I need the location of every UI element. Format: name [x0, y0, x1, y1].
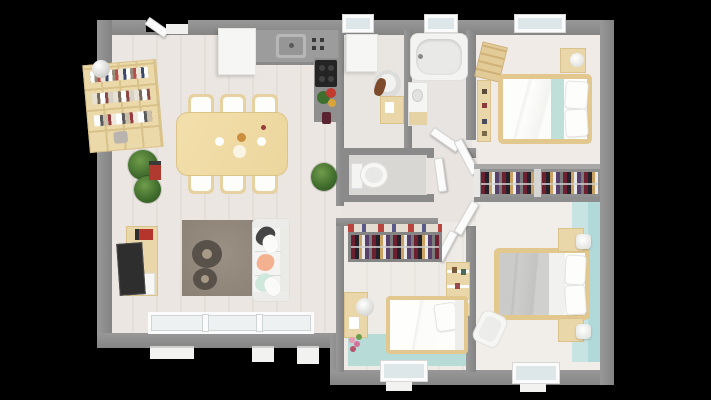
- utility-window-glass: [346, 18, 370, 29]
- bathtub: [410, 33, 468, 81]
- sofa-backrest: [280, 219, 289, 301]
- bedroom3-lamp-top: [576, 234, 591, 249]
- nightstand-lamp: [570, 53, 584, 67]
- cooktop-burners: [319, 65, 325, 71]
- window-sill-tab-3: [297, 346, 319, 364]
- desk-chair: [374, 70, 401, 98]
- bedroom2-bed: [386, 296, 468, 354]
- wardrobe-unit-2-clothes: [542, 172, 598, 194]
- outer-wall-bottom-right: [330, 370, 614, 385]
- bed1-pillow-1: [564, 80, 589, 110]
- chair3-cushion: [477, 314, 503, 343]
- window-sill-tab-2: [252, 346, 274, 362]
- bedroom2-window: [380, 360, 428, 382]
- utility-desk: [380, 96, 404, 124]
- books-row-2: [92, 89, 151, 105]
- window-mullion-2: [257, 315, 262, 331]
- pouf-center: [201, 275, 209, 283]
- basket-decor: [113, 131, 128, 144]
- wardrobe2-top-shelf-items: [348, 224, 442, 232]
- table-setting-plates: [215, 137, 224, 146]
- books-row-3: [94, 111, 153, 127]
- flower-yellow: [328, 99, 336, 107]
- bed1-pillow-2: [564, 108, 588, 137]
- bedroom3-bed: [494, 248, 590, 320]
- pouf-center: [202, 249, 212, 259]
- window-mullion-1: [203, 315, 208, 331]
- potted-plant-hall: [311, 163, 337, 191]
- bedroom3-lamp-bottom: [576, 324, 591, 339]
- bedroom3-window-glass: [516, 366, 556, 380]
- wardrobe-divider: [534, 169, 541, 197]
- sofa-armrest-top: [253, 219, 289, 228]
- bed3-pillow-1: [564, 254, 587, 285]
- dining-table: [176, 112, 288, 176]
- bed1-teal-runner: [551, 79, 564, 139]
- bedroom1-nightstand: [560, 48, 586, 73]
- bathtub-faucet: [418, 54, 423, 59]
- cushion-peach: [255, 252, 276, 273]
- pouf-small: [193, 268, 217, 290]
- shelf-items: [482, 89, 487, 94]
- bed3-duvet-gray: [499, 253, 549, 315]
- counter-bottle: [322, 112, 331, 124]
- shelf-items: [452, 267, 457, 273]
- outer-wall-right: [600, 20, 614, 385]
- wc-room: [342, 148, 434, 202]
- wardrobe-rail: [481, 183, 534, 185]
- wardrobe-rail: [542, 183, 598, 185]
- bedroom1-bed: [498, 74, 592, 144]
- wall-bedroom2-left: [336, 226, 344, 372]
- desk-paper: [385, 102, 394, 113]
- bedroom3-window-sill: [520, 384, 546, 392]
- bedroom2-flowers: [349, 337, 355, 343]
- console-red-box: [135, 229, 153, 240]
- bedroom1-window-glass: [518, 18, 562, 29]
- wc-door-gap: [426, 158, 434, 194]
- washing-machine: [346, 34, 378, 72]
- narrow-shelf: [477, 80, 491, 142]
- window-sill-tab-1: [150, 346, 194, 359]
- bedroom2-window-glass: [384, 364, 424, 378]
- desk2-paper: [349, 317, 359, 329]
- potted-plant-2: [134, 176, 161, 203]
- bedroom3-window: [512, 362, 560, 384]
- bedroom1-window: [514, 14, 566, 33]
- wardrobe-bottom-edge: [474, 197, 600, 202]
- floor-plan-render: [0, 0, 711, 400]
- wardrobe-strip: [474, 164, 600, 202]
- bed2-foot-mattress: [455, 300, 464, 350]
- kitchen-sink: [276, 34, 306, 58]
- wc-toilet-seat: [365, 167, 383, 183]
- bathroom-window-glass: [428, 18, 454, 29]
- counter-flowers: [316, 88, 338, 112]
- flower-red: [326, 88, 336, 98]
- bed2-duvet: [390, 300, 436, 350]
- bedroom2-window-sill: [386, 382, 412, 391]
- wardrobe2-clothes: [351, 235, 439, 259]
- red-decor-item: [149, 161, 161, 180]
- utility-window: [342, 14, 374, 33]
- wardrobe-unit-1-clothes: [481, 172, 534, 194]
- wardrobe-left-cap: [474, 169, 480, 197]
- bed3-pillow-2: [564, 284, 587, 315]
- wardrobe-rail: [351, 246, 439, 248]
- sink-faucet: [289, 43, 294, 48]
- kitchen-tall-cabinet: [218, 28, 256, 75]
- ball-lamp: [92, 60, 110, 78]
- cooktop: [315, 60, 337, 87]
- bathroom-vanity: [408, 82, 428, 126]
- kitchen-knobs: [312, 38, 316, 42]
- bedroom2-wardrobe: [348, 224, 442, 262]
- sliding-glass-windows: [148, 312, 314, 334]
- bed1-duvet: [503, 79, 551, 139]
- tv: [116, 242, 146, 296]
- wc-toilet-bowl: [360, 162, 388, 188]
- vanity-wood-base: [409, 112, 427, 125]
- bed3-sheet-fold: [549, 253, 565, 315]
- entrance-sill: [166, 24, 188, 34]
- pouf-large: [192, 240, 222, 268]
- bedroom2-desk-lamp: [356, 298, 374, 316]
- sofa: [252, 218, 290, 302]
- bathroom-window: [424, 14, 458, 33]
- vanity-sink: [412, 89, 423, 102]
